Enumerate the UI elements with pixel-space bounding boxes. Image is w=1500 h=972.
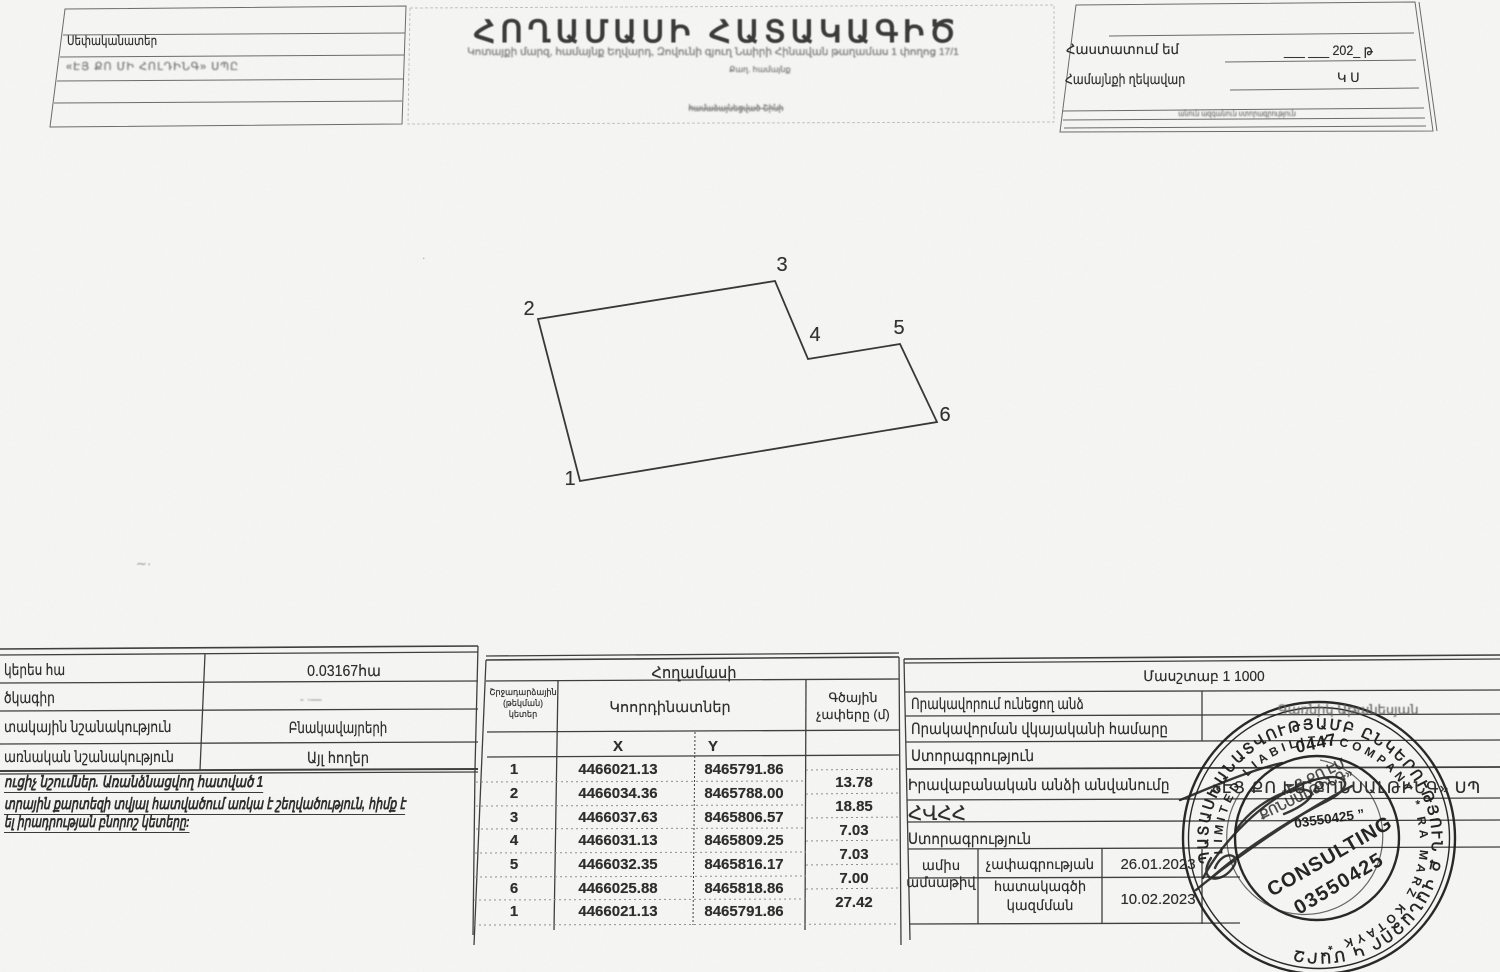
svg-text:03550425 ”: 03550425 ”	[1293, 806, 1365, 831]
svg-text:ՊԱՏԱՍԽԱՆԱՏՎՈՒԹՅԱՄԲ ԸՆԿԵՐՈՒԹՅՈՒ: ՊԱՏԱՍԽԱՆԱՏՎՈՒԹՅԱՄԲ ԸՆԿԵՐՈՒԹՅՈՒՆ Ք ՎԱՆԱՁՈ…	[1196, 717, 1444, 965]
